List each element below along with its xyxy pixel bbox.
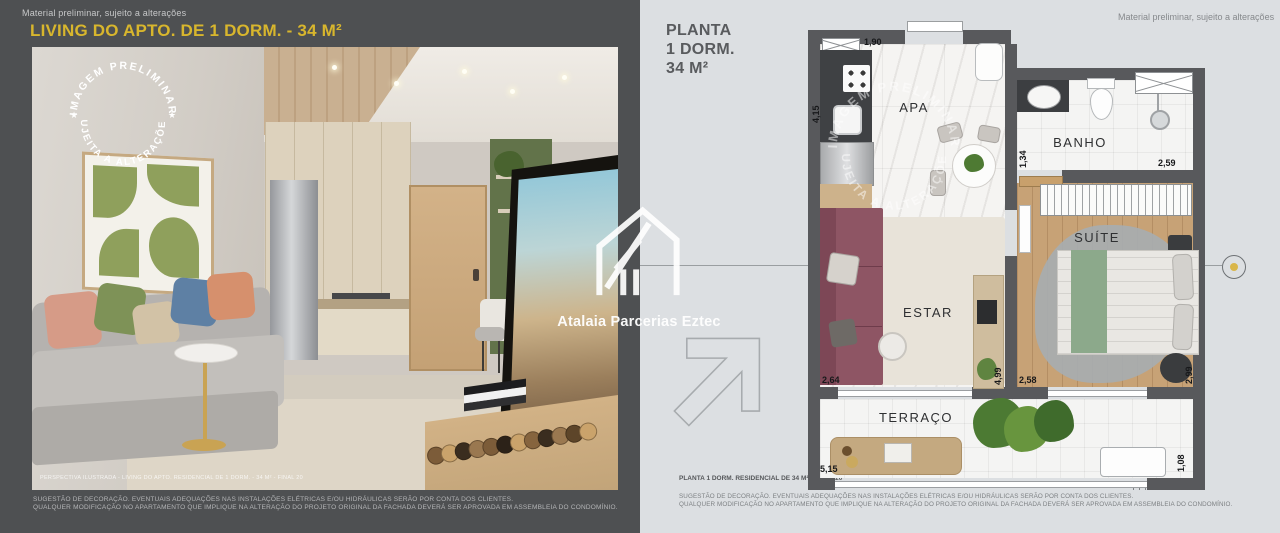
suite-niche [1019,205,1031,253]
cooktop [332,293,390,299]
room-label-living: ESTAR [903,305,953,320]
bed-pillow [1172,304,1194,351]
plan-preliminary-stamp: IMAGEM PRELIMINAR SUJEITA A ALTERAÇÕES [816,66,972,222]
direction-arrow [668,326,772,438]
preliminary-stamp: IMAGEM PRELIMINAR SUJEITA A ALTERAÇÕES ★… [60,49,186,175]
spotlight [394,81,399,86]
left-panel: Material preliminar, sujeito a alteraçõe… [0,0,640,533]
dim-kitchen-width: 1,90 [864,37,882,47]
room-label-bathroom: BANHO [1053,135,1107,150]
bench-decor [842,446,852,456]
disclaimer-left-1: SUGESTÃO DE DECORAÇÃO. EVENTUAIS ADEQUAÇ… [33,496,513,503]
linen-box [1135,72,1193,94]
room-label-suite: SUÍTE [1074,230,1120,245]
stamp-top-text: IMAGEM PRELIMINAR [68,60,178,116]
pillow-peach [206,271,256,321]
suite-window [1048,390,1147,397]
dim-living-width: 2,64 [822,375,840,385]
dim-suite-height: 2,99 [1184,366,1194,384]
wall-terrace-1 [808,387,838,399]
disclaimer-right-1: SUGESTÃO DE DECORAÇÃO. EVENTUAIS ADEQUAÇ… [679,493,1133,500]
terrace-planter [1100,447,1166,477]
room-label-kitchen: APA [899,100,929,115]
stamp-star-right: ★ [168,110,176,120]
bench-decor [846,456,858,468]
svg-text:IMAGEM PRELIMINAR: IMAGEM PRELIMINAR [825,79,963,149]
living-room-photo: IMAGEM PRELIMINAR SUJEITA A ALTERAÇÕES ★… [32,47,618,490]
page-title: LIVING DO APTO. DE 1 DORM. - 34 M² [30,21,342,41]
stool-leg [482,337,484,371]
dim-terrace-height: 1,08 [1176,454,1186,472]
kitchen-lower-cabinets [318,309,412,355]
atalaia-house-logo [592,203,684,299]
vanity-sink [1027,85,1061,109]
spotlight [332,65,337,70]
wall-bottom-right [1147,478,1205,490]
disclaimer-right-2: QUALQUER MODIFICAÇÃO NO APARTAMENTO QUE … [679,501,1232,508]
bench-book [884,443,912,463]
svg-text:IMAGEM PRELIMINAR: IMAGEM PRELIMINAR [68,60,178,116]
dim-bathroom-width: 2,59 [1158,158,1176,168]
preliminary-note-left: Material preliminar, sujeito a alteraçõe… [22,8,186,18]
shower-head [1150,110,1170,130]
plan-title-line2: 1 DORM. [666,41,735,59]
side-table-base [182,439,226,451]
wardrobe [1040,184,1192,216]
refrigerator [270,180,318,360]
wall-center-lower [1005,256,1017,397]
floor-plan: IMAGEM PRELIMINAR SUJEITA A ALTERAÇÕES A… [806,28,1206,490]
stool [475,327,505,341]
wall-center-upper [1005,44,1017,210]
terrace-railing [835,481,1147,488]
dim-bathroom-height: 1,34 [1018,150,1028,168]
photo-caption: PERSPECTIVA ILUSTRADA - LIVING DO APTO. … [40,475,303,481]
plan-title-line3: 34 M² [666,60,708,78]
brand-name: Atalaia Parcerias Eztec [557,314,721,330]
stamp-star-left: ★ [70,110,78,120]
spotlight [510,89,515,94]
unit-marker [1222,255,1246,279]
living-sliding-door [838,390,972,397]
dim-kitchen-height: 4,15 [811,105,821,123]
preliminary-note-right: Material preliminar, sujeito a alteraçõe… [1118,12,1274,22]
plan-title-line1: PLANTA [666,22,732,40]
bed-runner [1071,250,1107,353]
disclaimer-left-2: QUALQUER MODIFICAÇÃO NO APARTAMENTO QUE … [33,504,618,511]
stool-leg [498,339,500,373]
door-lock [473,269,479,281]
side-table-stem [203,353,207,445]
wall-top-2 [963,30,1011,44]
dim-living-height: 4,99 [993,367,1003,385]
sofa-back-plan [820,208,836,385]
dim-terrace-width: 5,15 [820,464,838,474]
sofa-pillow [828,318,858,348]
bed-pillow [1172,254,1194,301]
tv-plan [977,300,997,324]
pouf [878,332,907,361]
kitchen-counter [318,299,412,309]
room-label-terrace: TERRAÇO [879,410,953,425]
plan-stamp-top: IMAGEM PRELIMINAR [825,79,963,149]
spotlight [462,69,467,74]
spotlight [562,75,567,80]
terrace-plant [1034,400,1074,442]
laundry-sink [975,43,1003,81]
wall-terrace-3 [1147,387,1193,399]
entry-door-leaf [907,21,963,32]
wall-bathroom-suite [1062,170,1193,183]
dim-suite-width: 2,58 [1019,375,1037,385]
sofa-pillow [826,252,860,286]
wall-bottom-left [808,478,835,490]
unit-marker-dot [1230,263,1238,271]
side-table-top [174,343,238,363]
